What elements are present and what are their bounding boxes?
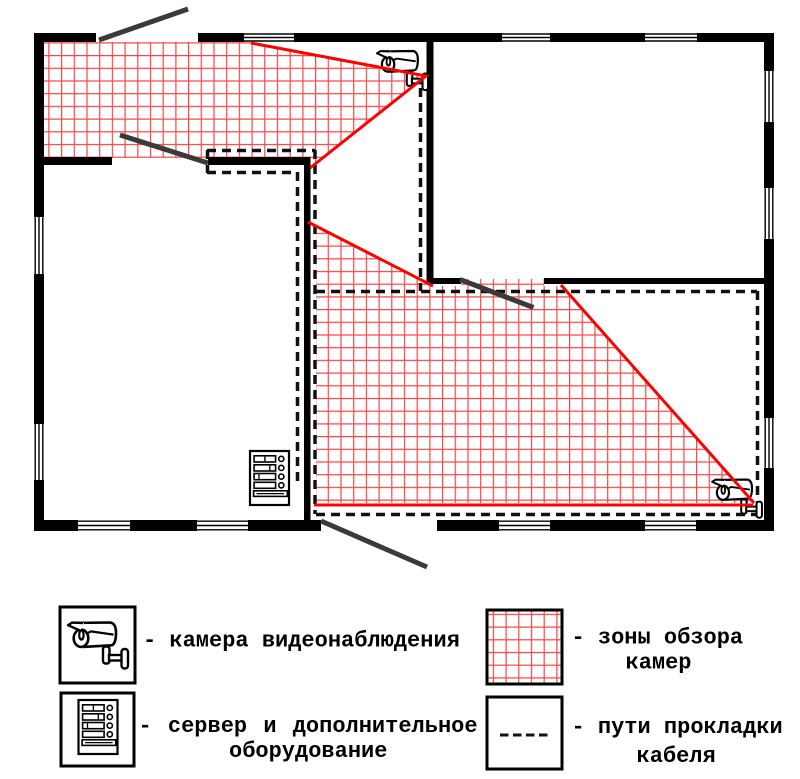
svg-text:- камера видеонаблюдения: - камера видеонаблюдения [143,629,460,654]
svg-text:- пути прокладки: - пути прокладки [572,715,783,740]
svg-text:кабеля: кабеля [637,744,716,769]
svg-text:- сервер и дополнительное: - сервер и дополнительное [139,714,478,739]
svg-text:камер: камер [626,651,692,676]
svg-text:оборудование: оборудование [229,739,387,764]
svg-text:- зоны обзора: - зоны обзора [572,626,744,651]
